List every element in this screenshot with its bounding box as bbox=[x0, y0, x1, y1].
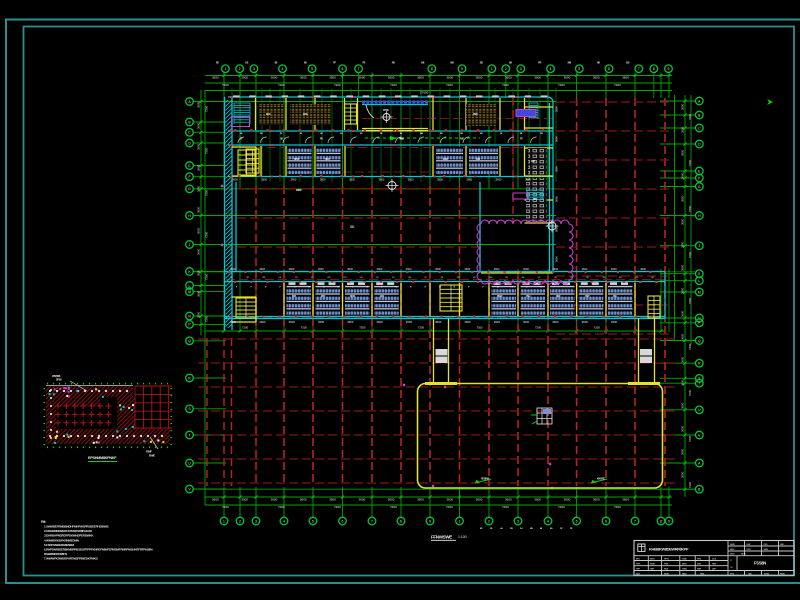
svg-text:WFK: WFK bbox=[636, 564, 641, 566]
svg-text:3600: 3600 bbox=[555, 256, 559, 262]
svg-text:7200: 7200 bbox=[688, 297, 692, 304]
svg-text:3600: 3600 bbox=[582, 267, 588, 271]
svg-text:7200: 7200 bbox=[688, 205, 692, 212]
svg-text:1:100: 1:100 bbox=[458, 535, 467, 539]
svg-text:3600: 3600 bbox=[197, 311, 201, 318]
svg-text:3600: 3600 bbox=[681, 126, 685, 133]
svg-text:3600: 3600 bbox=[259, 320, 266, 324]
svg-text:J: J bbox=[189, 243, 191, 247]
svg-text:3600: 3600 bbox=[494, 267, 500, 271]
svg-text:7200: 7200 bbox=[301, 325, 308, 329]
svg-text:3600: 3600 bbox=[681, 310, 685, 317]
svg-text:9: 9 bbox=[429, 519, 431, 523]
svg-text:F8N: F8N bbox=[476, 158, 480, 161]
svg-text:3600: 3600 bbox=[230, 320, 237, 324]
svg-text:7: 7 bbox=[634, 519, 636, 523]
svg-text:FFNWSWE: FFNWSWE bbox=[431, 535, 452, 540]
svg-text:3600: 3600 bbox=[241, 76, 248, 80]
svg-text:7200: 7200 bbox=[558, 83, 565, 87]
svg-text:3600: 3600 bbox=[552, 320, 559, 324]
svg-text:3600: 3600 bbox=[523, 267, 529, 271]
svg-text:3600: 3600 bbox=[197, 122, 201, 129]
svg-text:3600: 3600 bbox=[197, 206, 201, 213]
svg-text:WKM: WKM bbox=[764, 573, 769, 575]
svg-text:3600: 3600 bbox=[437, 178, 443, 182]
svg-text:3600: 3600 bbox=[406, 267, 412, 271]
svg-text:3600: 3600 bbox=[681, 103, 685, 110]
svg-text:7200: 7200 bbox=[205, 189, 209, 196]
svg-text:9: 9 bbox=[668, 67, 670, 71]
svg-text:7200: 7200 bbox=[614, 83, 621, 87]
svg-text:KER: KER bbox=[650, 568, 655, 570]
svg-text:3600: 3600 bbox=[681, 287, 685, 294]
svg-text:3600: 3600 bbox=[534, 76, 541, 80]
svg-text:3600: 3600 bbox=[212, 497, 219, 501]
svg-text:KKHPE: KKHPE bbox=[597, 477, 605, 481]
svg-text:7200: 7200 bbox=[278, 83, 285, 87]
svg-text:3600: 3600 bbox=[494, 320, 501, 324]
svg-text:3600: 3600 bbox=[681, 448, 685, 455]
svg-text:3600: 3600 bbox=[259, 267, 265, 271]
svg-text:7200: 7200 bbox=[205, 231, 209, 238]
svg-text:3600: 3600 bbox=[289, 267, 295, 271]
svg-text:3600: 3600 bbox=[681, 356, 685, 363]
svg-text:2: 2 bbox=[239, 519, 241, 523]
svg-text:SM: SM bbox=[635, 277, 638, 279]
svg-text:8RBB: 8RBB bbox=[296, 189, 302, 192]
svg-text:FEBPM: FEBPM bbox=[481, 477, 489, 481]
svg-text:7200: 7200 bbox=[205, 315, 209, 322]
svg-text:3600: 3600 bbox=[564, 497, 571, 501]
svg-text:FW: FW bbox=[510, 528, 513, 530]
svg-text:J: J bbox=[698, 244, 700, 248]
svg-text:3600: 3600 bbox=[271, 497, 278, 501]
svg-text:5: 5 bbox=[311, 67, 313, 71]
svg-text:3600: 3600 bbox=[496, 178, 502, 182]
svg-text:8: 8 bbox=[653, 67, 655, 71]
svg-text:RKH: RKH bbox=[730, 549, 735, 551]
svg-text:G: G bbox=[188, 187, 191, 191]
svg-text:3600: 3600 bbox=[611, 267, 617, 271]
svg-text:3: 3 bbox=[253, 67, 255, 71]
svg-text:7200: 7200 bbox=[502, 83, 509, 87]
svg-text:3600: 3600 bbox=[318, 267, 324, 271]
svg-text:L: L bbox=[698, 279, 700, 283]
svg-text:7200: 7200 bbox=[614, 505, 621, 509]
svg-text:3600: 3600 bbox=[555, 166, 559, 172]
svg-text:7: 7 bbox=[358, 67, 360, 71]
svg-text:7200: 7200 bbox=[390, 83, 397, 87]
svg-text:3600: 3600 bbox=[582, 320, 589, 324]
svg-text:2.HRHBMNDBNKFKFENDSR8PHKHD: 2.HRHBMNDBNKFKFENDSR8PHKHD bbox=[44, 529, 93, 533]
svg-text:3600: 3600 bbox=[681, 333, 685, 340]
svg-text:7200: 7200 bbox=[558, 505, 565, 509]
svg-text:WBS: WBS bbox=[764, 549, 769, 551]
svg-text:MWE: MWE bbox=[650, 564, 655, 566]
svg-text:2: 2 bbox=[505, 67, 507, 71]
svg-text:3600: 3600 bbox=[464, 267, 470, 271]
svg-text:1: 1 bbox=[459, 519, 461, 523]
svg-text:3600: 3600 bbox=[197, 290, 201, 297]
svg-text:7200: 7200 bbox=[502, 505, 509, 509]
svg-text:3600: 3600 bbox=[388, 497, 395, 501]
svg-text:3600: 3600 bbox=[197, 101, 201, 108]
svg-text:DBK: DBK bbox=[533, 199, 538, 201]
svg-text:4: 4 bbox=[283, 519, 285, 523]
svg-text:2: 2 bbox=[239, 67, 241, 71]
svg-text:7200: 7200 bbox=[446, 83, 453, 87]
svg-text:FMP: FMP bbox=[585, 295, 590, 298]
svg-text:NM: NM bbox=[568, 62, 571, 65]
svg-text:1: 1 bbox=[491, 67, 493, 71]
svg-text:PBD: PBD bbox=[764, 544, 769, 546]
svg-text:3600: 3600 bbox=[291, 178, 297, 182]
svg-text:7200: 7200 bbox=[390, 505, 397, 509]
svg-text:3: 3 bbox=[517, 519, 519, 523]
svg-text:T: T bbox=[188, 433, 190, 437]
svg-text:RM: RM bbox=[460, 139, 463, 141]
svg-text:8: 8 bbox=[660, 519, 662, 523]
svg-text:3600: 3600 bbox=[320, 178, 326, 182]
svg-text:HM: HM bbox=[360, 277, 363, 279]
svg-text:7200: 7200 bbox=[688, 343, 692, 350]
svg-text:6: 6 bbox=[342, 519, 344, 523]
svg-text:57600: 57600 bbox=[420, 90, 429, 94]
svg-text:3600: 3600 bbox=[197, 227, 201, 234]
svg-text:8MD: 8MD bbox=[473, 113, 478, 116]
svg-text:RWR: RWR bbox=[730, 544, 735, 546]
svg-text:FPSE: FPSE bbox=[383, 108, 389, 112]
svg-text:3600: 3600 bbox=[300, 497, 307, 501]
svg-text:3600: 3600 bbox=[611, 320, 618, 324]
svg-text:8: 8 bbox=[400, 519, 402, 523]
svg-text:3600: 3600 bbox=[681, 264, 685, 271]
svg-text:3600: 3600 bbox=[271, 76, 278, 80]
svg-text:7200: 7200 bbox=[222, 505, 229, 509]
svg-text:3600: 3600 bbox=[377, 320, 384, 324]
svg-text:7200: 7200 bbox=[205, 273, 209, 280]
svg-text:7: 7 bbox=[638, 67, 640, 71]
svg-text:3600: 3600 bbox=[555, 226, 559, 232]
svg-text:6: 6 bbox=[342, 67, 344, 71]
svg-text:3600: 3600 bbox=[622, 76, 629, 80]
svg-text:1: 1 bbox=[223, 519, 225, 523]
svg-text:DFSB: DFSB bbox=[56, 379, 62, 382]
svg-text:NNK: NNK bbox=[556, 295, 561, 298]
svg-text:3600: 3600 bbox=[681, 402, 685, 409]
svg-text:8: 8 bbox=[431, 67, 433, 71]
svg-text:3600: 3600 bbox=[261, 178, 267, 182]
svg-text:3.DHRBHPNDRDFPDKMHDPERBWKK: 3.DHRBHPNDRDFPDKMHDPERBWKK bbox=[44, 534, 94, 538]
svg-text:3600: 3600 bbox=[466, 178, 472, 182]
svg-text:KHBBKW8DEWRF8KPP: KHBBKW8DEWRF8KPP bbox=[649, 547, 689, 552]
svg-text:M: M bbox=[698, 290, 701, 294]
svg-text:3600: 3600 bbox=[523, 320, 530, 324]
svg-text:3600: 3600 bbox=[622, 497, 629, 501]
svg-text:F: F bbox=[188, 175, 190, 179]
svg-text:PW: PW bbox=[540, 133, 543, 135]
svg-text:3600: 3600 bbox=[212, 76, 219, 80]
svg-text:EKE: EKE bbox=[380, 295, 385, 298]
svg-text:7200: 7200 bbox=[359, 325, 366, 329]
svg-text:ESM: ESM bbox=[443, 158, 448, 161]
svg-text:7200: 7200 bbox=[418, 325, 425, 329]
svg-text:7200: 7200 bbox=[688, 389, 692, 396]
svg-text:7200: 7200 bbox=[334, 505, 341, 509]
svg-text:3600: 3600 bbox=[232, 178, 238, 182]
svg-text:1: 1 bbox=[224, 67, 226, 71]
svg-text:3600: 3600 bbox=[593, 497, 600, 501]
svg-text:DED: DED bbox=[780, 544, 785, 546]
svg-text:KDM: KDM bbox=[350, 295, 355, 298]
svg-text:G: G bbox=[698, 185, 701, 189]
svg-text:3600: 3600 bbox=[197, 248, 201, 255]
svg-text:4: 4 bbox=[550, 67, 552, 71]
svg-text:3600: 3600 bbox=[406, 320, 413, 324]
svg-text:3600: 3600 bbox=[197, 269, 201, 276]
svg-text:3600: 3600 bbox=[525, 178, 531, 182]
svg-text:FND: FND bbox=[531, 161, 535, 163]
svg-text:3600: 3600 bbox=[564, 76, 571, 80]
svg-text:7200: 7200 bbox=[446, 505, 453, 509]
svg-text:3600: 3600 bbox=[417, 497, 424, 501]
svg-text:RWB: RWB bbox=[664, 573, 669, 575]
svg-text:FNH: FNH bbox=[526, 295, 531, 298]
svg-text:KFM: KFM bbox=[697, 558, 701, 560]
svg-text:FM:: FM: bbox=[41, 520, 46, 524]
svg-text:3600: 3600 bbox=[681, 425, 685, 432]
svg-text:3600: 3600 bbox=[197, 185, 201, 192]
svg-text:7200: 7200 bbox=[688, 481, 692, 488]
svg-text:3600: 3600 bbox=[435, 320, 442, 324]
svg-text:7200: 7200 bbox=[688, 435, 692, 442]
svg-text:7200: 7200 bbox=[242, 325, 249, 329]
svg-text:EPSHMM8KPNKF: EPSHMM8KPNKF bbox=[88, 456, 117, 460]
svg-text:RWB: RWB bbox=[780, 573, 785, 575]
svg-text:SM: SM bbox=[408, 277, 411, 279]
svg-text:7200: 7200 bbox=[688, 251, 692, 258]
svg-text:3600: 3600 bbox=[408, 178, 414, 182]
svg-text:3600: 3600 bbox=[464, 320, 471, 324]
svg-text:FSS8N: FSS8N bbox=[754, 561, 766, 566]
svg-text:3600: 3600 bbox=[534, 497, 541, 501]
svg-text:HKR: HKR bbox=[712, 564, 717, 566]
svg-text:3600: 3600 bbox=[347, 267, 353, 271]
svg-text:3600: 3600 bbox=[377, 267, 383, 271]
svg-text:M: M bbox=[188, 290, 191, 294]
svg-text:2: 2 bbox=[488, 519, 490, 523]
svg-text:KRR: KRR bbox=[697, 568, 702, 570]
svg-text:EHME: EHME bbox=[149, 454, 155, 457]
svg-text:3600: 3600 bbox=[681, 195, 685, 202]
svg-text:3600: 3600 bbox=[640, 267, 646, 271]
svg-text:3600: 3600 bbox=[555, 196, 559, 202]
svg-text:WSPM8: WSPM8 bbox=[52, 374, 61, 378]
svg-text:3600: 3600 bbox=[681, 149, 685, 156]
svg-text:3600: 3600 bbox=[241, 497, 248, 501]
svg-text:9: 9 bbox=[668, 519, 670, 523]
svg-text:3600: 3600 bbox=[359, 76, 366, 80]
svg-text:6: 6 bbox=[605, 519, 607, 523]
svg-text:PMR: PMR bbox=[399, 137, 404, 140]
svg-text:3600: 3600 bbox=[347, 320, 354, 324]
svg-text:3600: 3600 bbox=[555, 136, 559, 142]
svg-text:7: 7 bbox=[371, 519, 373, 523]
svg-text:F: F bbox=[698, 176, 700, 180]
svg-text:3600: 3600 bbox=[505, 497, 512, 501]
svg-text:3600: 3600 bbox=[318, 320, 325, 324]
svg-text:3600: 3600 bbox=[349, 178, 355, 182]
svg-text:SEH: SEH bbox=[697, 564, 702, 566]
svg-text:5: 5 bbox=[576, 519, 578, 523]
svg-text:RSBMMKRD88FN: RSBMMKRD88FN bbox=[44, 552, 67, 556]
svg-text:5.FSRFSNBEMH8MBE8: 5.FSRFSNBEMH8MBE8 bbox=[44, 543, 74, 547]
svg-text:NMD: NMD bbox=[682, 573, 687, 575]
svg-text:1.SWMBEFRMBBNDHFMHPWSPRSBEEPHS: 1.SWMBEFRMBBNDHFMHPWSPRSBEEPHSBN8S bbox=[44, 525, 109, 529]
svg-text:3600: 3600 bbox=[681, 218, 685, 225]
svg-text:4.WNMDKKBFKRNMEDMN: 4.WNMDKKBFKRNMEDMN bbox=[44, 538, 79, 542]
svg-text:3600: 3600 bbox=[593, 76, 600, 80]
svg-text:WMD: WMD bbox=[682, 558, 687, 560]
svg-text:3600: 3600 bbox=[435, 267, 441, 271]
svg-text:3600: 3600 bbox=[329, 497, 336, 501]
svg-text:7200: 7200 bbox=[688, 113, 692, 120]
svg-text:6.RNPDNR8SER8KMBPRBSDSFPPPFKNR: 6.RNPDNR8SER8KMBPRBSDSFPPPFKNREFN8NFEPMS… bbox=[44, 547, 153, 551]
svg-text:7200: 7200 bbox=[205, 105, 209, 112]
svg-text:3600: 3600 bbox=[681, 172, 685, 179]
svg-text:7200: 7200 bbox=[688, 159, 692, 166]
svg-text:4: 4 bbox=[547, 519, 549, 523]
svg-text:3600: 3600 bbox=[388, 76, 395, 80]
svg-text:3600: 3600 bbox=[417, 76, 424, 80]
svg-text:3600: 3600 bbox=[300, 76, 307, 80]
svg-text:3600: 3600 bbox=[446, 497, 453, 501]
svg-text:3600: 3600 bbox=[681, 379, 685, 386]
svg-text:WRB: WRB bbox=[682, 568, 687, 570]
svg-text:3600: 3600 bbox=[681, 241, 685, 248]
svg-text:3600: 3600 bbox=[681, 471, 685, 478]
svg-text:3600: 3600 bbox=[230, 267, 236, 271]
svg-text:3600: 3600 bbox=[379, 178, 385, 182]
svg-text:3600: 3600 bbox=[359, 497, 366, 501]
svg-text:Q: Q bbox=[698, 339, 701, 343]
svg-text:7200: 7200 bbox=[535, 325, 542, 329]
svg-text:7200: 7200 bbox=[222, 83, 229, 87]
svg-text:7200: 7200 bbox=[476, 325, 483, 329]
svg-text:3600: 3600 bbox=[329, 76, 336, 80]
svg-text:6: 6 bbox=[608, 67, 610, 71]
svg-text:3600: 3600 bbox=[552, 267, 558, 271]
svg-text:3600: 3600 bbox=[555, 106, 559, 112]
svg-text:7200: 7200 bbox=[278, 505, 285, 509]
svg-text:7200: 7200 bbox=[594, 325, 601, 329]
svg-text:4: 4 bbox=[282, 67, 284, 71]
svg-text:5: 5 bbox=[578, 67, 580, 71]
svg-text:9: 9 bbox=[461, 67, 463, 71]
svg-text:3: 3 bbox=[520, 67, 522, 71]
svg-text:3600: 3600 bbox=[505, 76, 512, 80]
svg-text:EER: EER bbox=[266, 113, 271, 116]
svg-text:7.WWWFKSWDDPHFEMSFF8NEDKFMKD: 7.WWWFKSWDDPHFEMSFF8NEDKFMKD bbox=[44, 556, 99, 560]
svg-text:3: 3 bbox=[255, 519, 257, 523]
svg-text:7200: 7200 bbox=[334, 83, 341, 87]
svg-text:FSMF: FSMF bbox=[146, 451, 152, 454]
svg-text:ENN: ENN bbox=[303, 113, 308, 116]
svg-text:3600: 3600 bbox=[476, 497, 483, 501]
svg-text:T: T bbox=[698, 382, 700, 386]
svg-text:3600: 3600 bbox=[289, 320, 296, 324]
svg-text:MNN: MNN bbox=[682, 564, 687, 566]
svg-text:SER: SER bbox=[325, 158, 330, 161]
svg-text:3600: 3600 bbox=[197, 143, 201, 150]
svg-text:7200: 7200 bbox=[205, 147, 209, 154]
svg-text:3600: 3600 bbox=[476, 76, 483, 80]
svg-text:5: 5 bbox=[312, 519, 314, 523]
svg-text:3600: 3600 bbox=[197, 164, 201, 171]
svg-text:3600: 3600 bbox=[446, 76, 453, 80]
svg-text:Q: Q bbox=[188, 339, 191, 343]
